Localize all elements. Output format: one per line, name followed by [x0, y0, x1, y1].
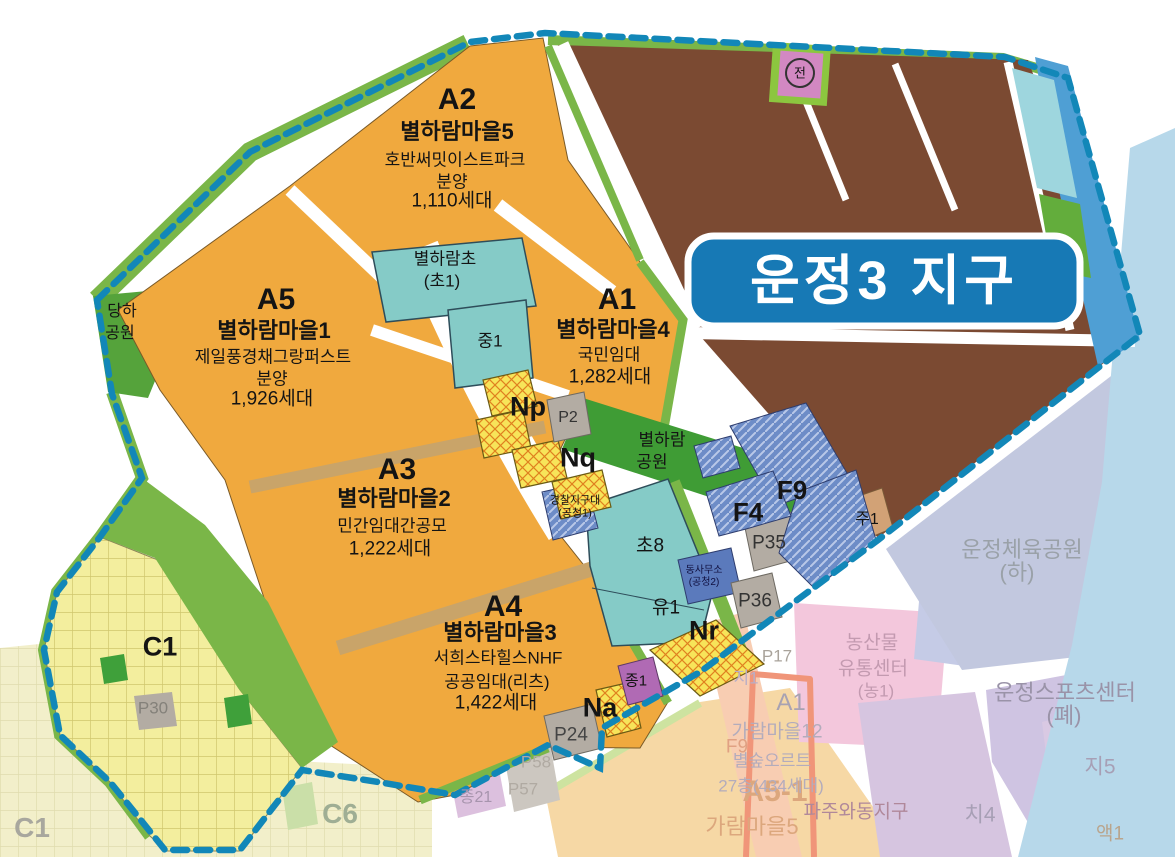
sports-park-line2: (하) [1000, 562, 1035, 584]
elementary-code: (초1) [424, 273, 460, 290]
garam12-id: A1 [776, 691, 805, 715]
f4-label: F4 [733, 499, 763, 525]
a1-id: A1 [598, 285, 636, 315]
nq-label: Nq [560, 445, 596, 472]
a2-village: 별하람마을5 [400, 121, 513, 143]
faded-f9-label: F9 [726, 738, 748, 757]
aek1-label: 액1 [1096, 825, 1124, 844]
a3-units: 1,222세대 [349, 540, 432, 559]
f9-label: F9 [777, 477, 807, 503]
a1-units: 1,282세대 [569, 368, 652, 387]
a4-id: A4 [484, 592, 522, 622]
office-name: 동사무소 [686, 566, 723, 576]
middle-school-label: 중1 [477, 333, 502, 350]
ji1-label: 지1 [733, 670, 758, 687]
a1-village: 별하람마을4 [556, 319, 669, 341]
p58-label: P58 [521, 754, 551, 771]
danha-park-line1: 당하 [107, 304, 136, 320]
c1-label: C1 [143, 634, 178, 661]
sports-center-line1: 운정스포츠센터 [994, 682, 1136, 704]
a5-village: 별하람마을1 [217, 320, 330, 342]
wadong-label: 파주와동지구 [804, 803, 909, 822]
chi4-label: 치4 [965, 805, 996, 826]
cho8-label: 초8 [636, 537, 664, 556]
a2-brand: 호반써밋이스트파크 [385, 152, 526, 169]
a3-village: 별하람마을2 [337, 488, 450, 510]
a4-village: 별하람마을3 [443, 622, 556, 644]
p35-label: P35 [752, 534, 786, 553]
agri-line2: 유통센터 [838, 660, 908, 679]
na-label: Na [583, 695, 618, 722]
a5-id: A5 [257, 285, 295, 315]
p2-label: P2 [558, 410, 578, 426]
a4-brand: 서희스타힐스NHF [434, 650, 563, 667]
a2-units: 1,110세대 [411, 192, 492, 211]
faded-c6-label: C6 [322, 800, 358, 828]
byeolharam-park-line2: 공원 [636, 454, 667, 471]
p30-label: P30 [138, 700, 168, 717]
police-name: 경찰지구대 [550, 496, 601, 507]
np-label: Np [510, 394, 546, 421]
byeolharam-park-line1: 별하람 [639, 432, 686, 449]
a5-units: 1,926세대 [231, 390, 314, 409]
a5-brand: 제일풍경채그랑퍼스트 [195, 349, 351, 366]
jong1-label: 종1 [625, 674, 647, 689]
sports-park-line1: 운정체육공원 [961, 539, 1082, 561]
ju1-label: 주1 [855, 512, 879, 528]
a5-sale: 분양 [256, 371, 287, 388]
agri-line3: (농1) [858, 683, 894, 700]
garam12-units: 27층(434세대) [718, 778, 824, 795]
a5-1-village: 가람마을5 [705, 816, 798, 838]
police-code: (공청1) [558, 509, 592, 520]
district-map: A2 별하람마을5 호반써밋이스트파크 분양 1,110세대 A5 별하람마을1… [0, 0, 1175, 857]
agri-line1: 농산물 [846, 634, 898, 653]
road-brown-mid [690, 333, 1135, 341]
p24-label: P24 [554, 726, 588, 745]
district-title: 운정3 지구 [750, 254, 1018, 308]
p57-label: P57 [508, 781, 538, 798]
a4-units: 1,422세대 [455, 694, 538, 713]
jeon-label: 전 [794, 67, 806, 80]
a3-tenure: 민간임대간공모 [337, 518, 446, 535]
c1-green-parcel-2 [224, 694, 252, 728]
a1-tenure: 국민임대 [578, 347, 641, 364]
danha-park-line2: 공원 [105, 326, 134, 342]
elementary-name: 별하람초 [414, 251, 477, 268]
sports-center-line2: (폐) [1047, 705, 1082, 727]
a2-sale: 분양 [436, 174, 467, 191]
a4-tenure: 공공임대(리츠) [444, 674, 549, 691]
jong21-label: 종21 [460, 790, 493, 806]
a3-id: A3 [378, 455, 416, 485]
faded-c1-label: C1 [14, 814, 50, 842]
p36-label: P36 [738, 592, 772, 611]
nr-label: Nr [689, 618, 719, 645]
yu1-label: 유1 [652, 599, 680, 618]
office-code: (공청2) [689, 578, 720, 588]
a2-id: A2 [438, 85, 476, 115]
ji5-label: 지5 [1085, 757, 1116, 778]
c1-green-parcel-1 [100, 654, 128, 684]
p17-label: P17 [762, 648, 792, 665]
